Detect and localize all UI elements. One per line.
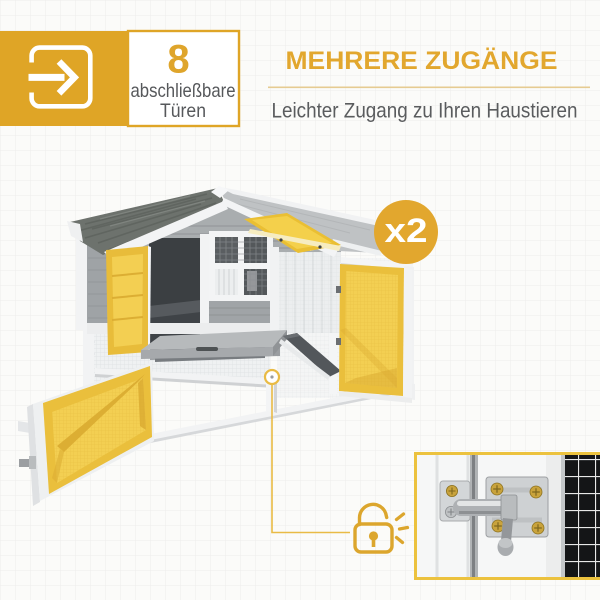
svg-text:x2: x2 bbox=[385, 212, 428, 250]
svg-text:MEHRERE ZUGÄNGE: MEHRERE ZUGÄNGE bbox=[286, 47, 558, 75]
svg-text:8: 8 bbox=[167, 38, 189, 82]
svg-text:Türen: Türen bbox=[160, 100, 206, 122]
svg-text:Leichter Zugang zu Ihren Haust: Leichter Zugang zu Ihren Haustieren bbox=[272, 100, 578, 123]
svg-text:abschließbare: abschließbare bbox=[131, 80, 236, 102]
